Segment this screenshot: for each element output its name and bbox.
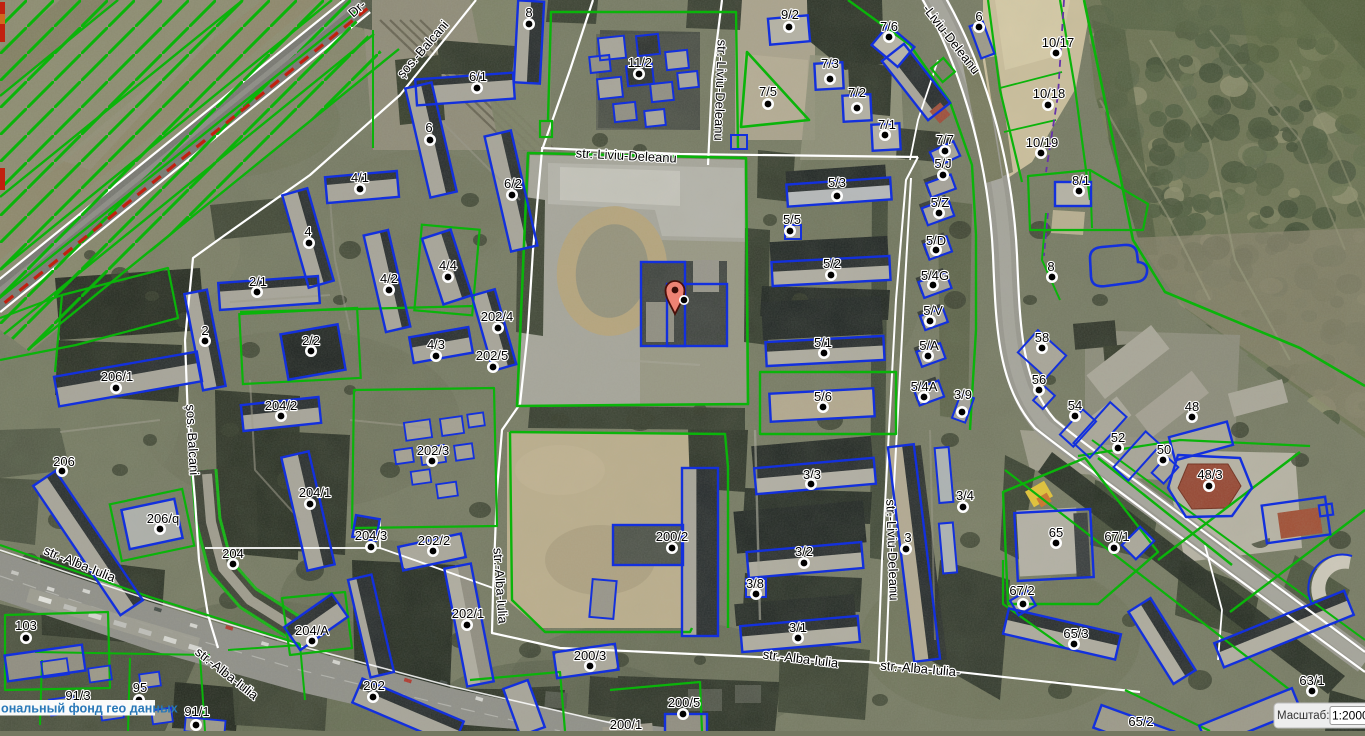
svg-text:202/1: 202/1 xyxy=(452,606,485,621)
svg-text:202/5: 202/5 xyxy=(476,348,509,363)
svg-text:5/V: 5/V xyxy=(923,303,943,318)
svg-text:206/q: 206/q xyxy=(147,511,180,526)
svg-text:5/2: 5/2 xyxy=(823,256,841,271)
svg-text:6: 6 xyxy=(425,120,432,135)
svg-text:ональный фонд гео данных: ональный фонд гео данных xyxy=(1,702,178,716)
svg-text:5/5: 5/5 xyxy=(783,212,801,227)
svg-text:7/2: 7/2 xyxy=(848,85,866,100)
svg-text:5/3: 5/3 xyxy=(828,175,846,190)
svg-text:3/2: 3/2 xyxy=(795,544,813,559)
svg-text:4: 4 xyxy=(304,224,311,239)
svg-text:95: 95 xyxy=(133,680,147,695)
svg-text:65/2: 65/2 xyxy=(1128,714,1153,729)
svg-text:Масштаб:: Масштаб: xyxy=(1277,710,1329,722)
svg-text:67/1: 67/1 xyxy=(1104,529,1129,544)
svg-text:10/18: 10/18 xyxy=(1033,86,1066,101)
svg-text:67/2: 67/2 xyxy=(1009,583,1034,598)
svg-text:8: 8 xyxy=(525,5,532,20)
svg-text:11/2: 11/2 xyxy=(628,55,652,70)
svg-text:7/3: 7/3 xyxy=(821,56,839,71)
svg-text:4/2: 4/2 xyxy=(380,271,398,286)
svg-text:4/3: 4/3 xyxy=(427,337,445,352)
svg-text:91/1: 91/1 xyxy=(184,704,209,719)
svg-text:3: 3 xyxy=(904,530,911,545)
svg-text:5/J: 5/J xyxy=(934,156,951,171)
svg-text:200/1: 200/1 xyxy=(610,717,643,731)
svg-text:202/4: 202/4 xyxy=(481,309,514,324)
svg-text:48/3: 48/3 xyxy=(1197,467,1222,482)
svg-text:6/2: 6/2 xyxy=(504,176,522,191)
svg-text:7/7: 7/7 xyxy=(936,132,954,147)
svg-text:4/1: 4/1 xyxy=(351,170,369,185)
svg-text:1:2000: 1:2000 xyxy=(1332,709,1365,723)
svg-text:103: 103 xyxy=(15,618,37,633)
svg-text:200/5: 200/5 xyxy=(668,695,701,710)
svg-text:206/1: 206/1 xyxy=(101,369,134,384)
svg-text:3/9: 3/9 xyxy=(954,387,972,402)
svg-text:6/1: 6/1 xyxy=(469,69,487,84)
svg-text:202: 202 xyxy=(363,678,385,693)
svg-text:3/4: 3/4 xyxy=(956,488,974,503)
svg-text:4/4: 4/4 xyxy=(439,258,457,273)
svg-text:7/5: 7/5 xyxy=(759,84,777,99)
svg-text:200/2: 200/2 xyxy=(656,529,689,544)
svg-text:204/1: 204/1 xyxy=(299,485,332,500)
svg-text:9/2: 9/2 xyxy=(781,7,799,22)
svg-text:204/3: 204/3 xyxy=(355,528,388,543)
